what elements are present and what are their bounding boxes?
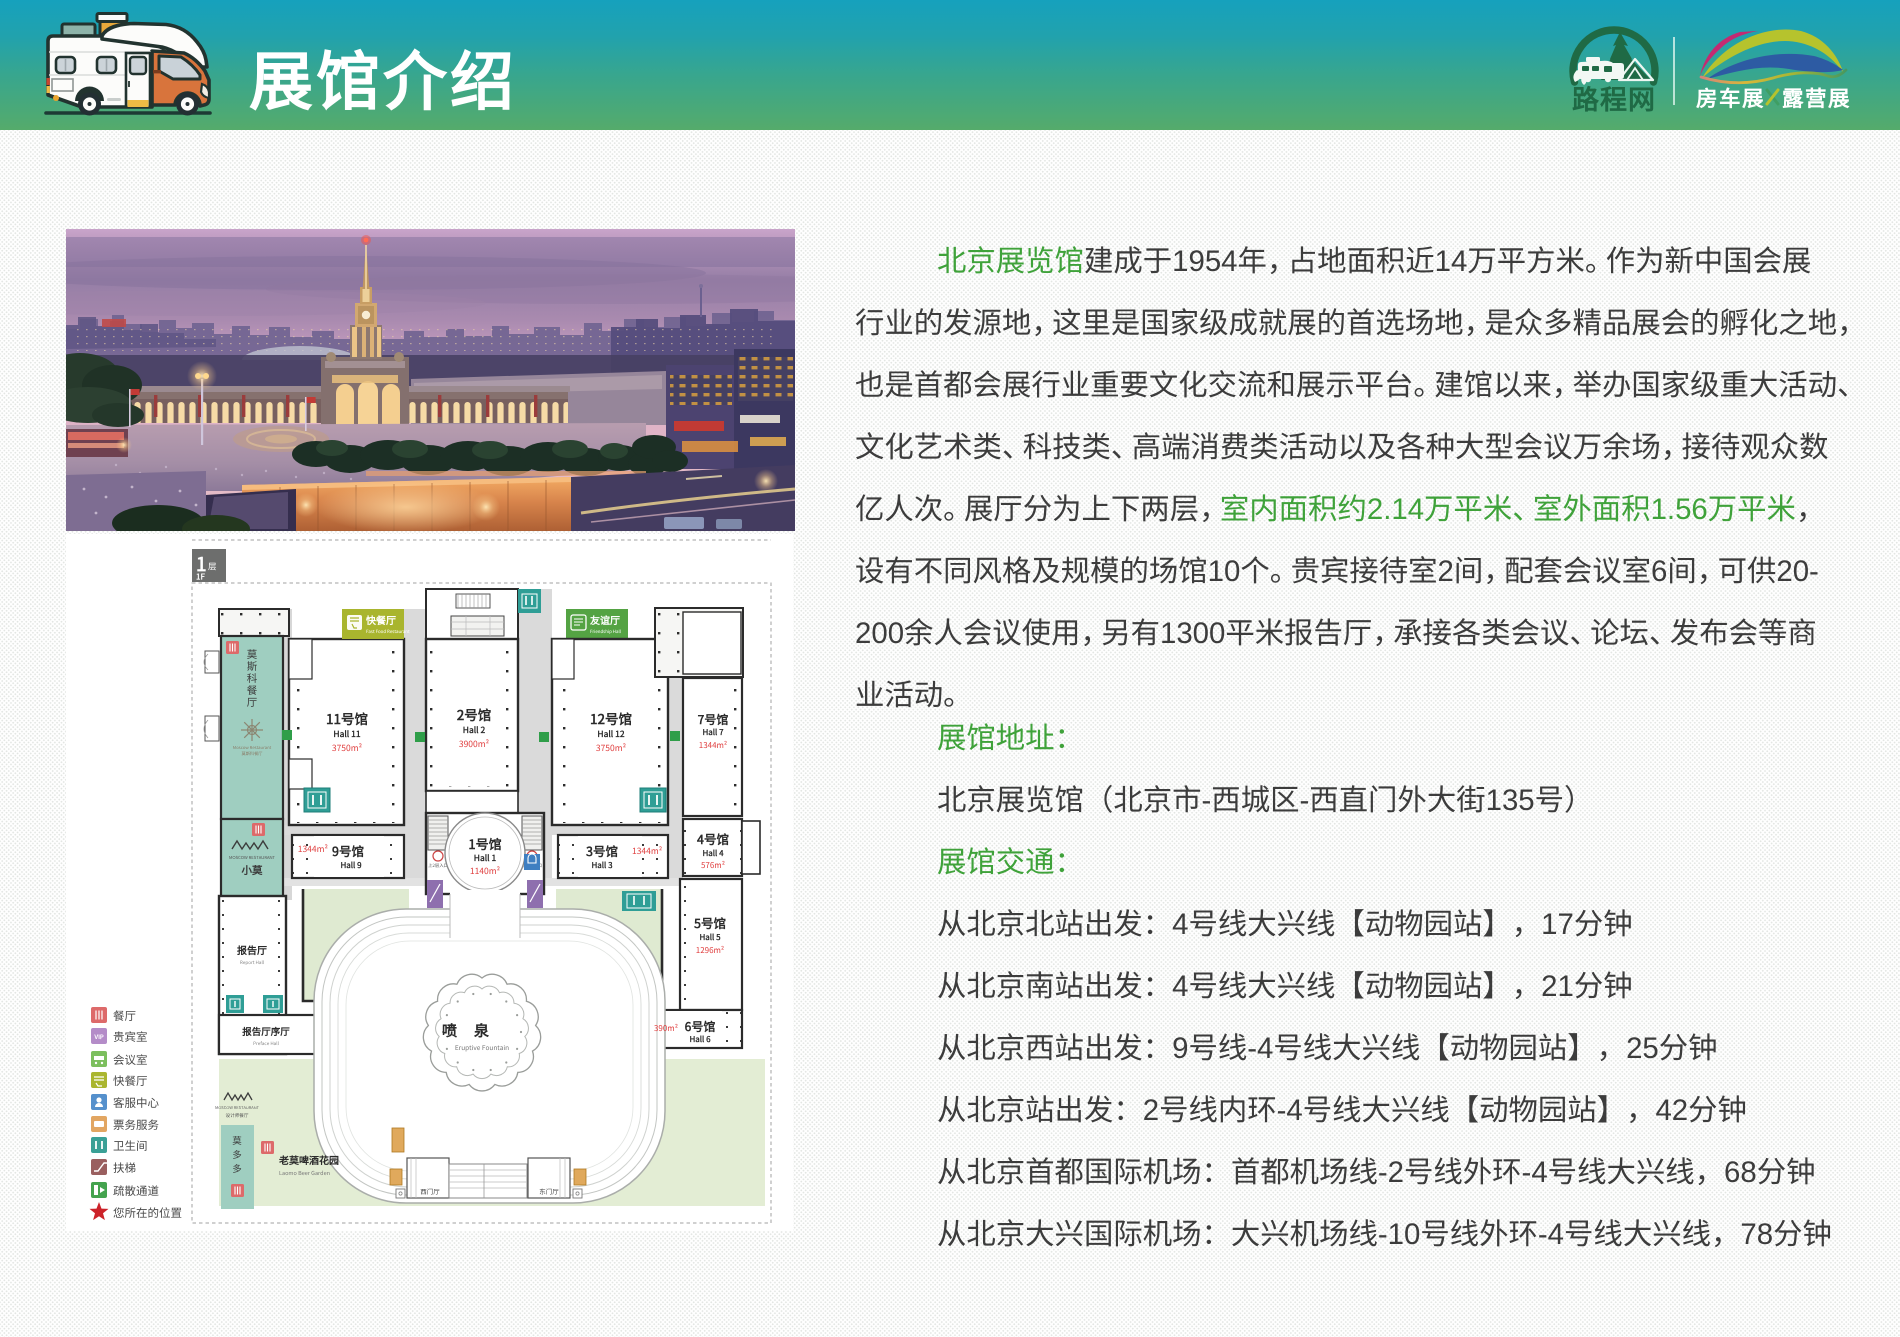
svg-text:Hall 7: Hall 7: [702, 727, 724, 738]
svg-text:Hall 1: Hall 1: [474, 852, 497, 864]
svg-text:MOSCOW RESTAURANT: MOSCOW RESTAURANT: [229, 855, 276, 861]
svg-text:您所在的位置: 您所在的位置: [113, 1205, 182, 1221]
svg-text:6号馆: 6号馆: [685, 1018, 716, 1035]
svg-text:报告厅序厅: 报告厅序厅: [242, 1024, 290, 1038]
svg-text:快餐厅: 快餐厅: [365, 612, 396, 627]
svg-text:房车展: 房车展: [1696, 82, 1765, 113]
svg-text:MOSCOW RESTAURANT: MOSCOW RESTAURANT: [215, 1105, 260, 1111]
svg-text:莫斯科餐厅: 莫斯科餐厅: [242, 751, 263, 757]
svg-text:上2层入口: 上2层入口: [428, 863, 448, 869]
svg-text:Hall 4: Hall 4: [702, 848, 724, 859]
svg-text:快餐厅: 快餐厅: [113, 1073, 148, 1089]
svg-text:Hall 6: Hall 6: [689, 1034, 711, 1045]
svg-text:1344m²: 1344m²: [632, 845, 663, 857]
svg-text:3750m²: 3750m²: [332, 742, 363, 754]
svg-text:厅: 厅: [247, 695, 258, 710]
svg-text:餐厅: 餐厅: [113, 1008, 136, 1024]
svg-text:多: 多: [232, 1161, 242, 1175]
svg-text:老莫啤酒花园: 老莫啤酒花园: [278, 1152, 339, 1167]
svg-text:VIP: VIP: [94, 1032, 104, 1041]
svg-text:会议室: 会议室: [113, 1052, 148, 1068]
svg-text:11号馆: 11号馆: [326, 708, 368, 728]
svg-text:客服中心: 客服中心: [113, 1095, 159, 1111]
svg-text:票务服务: 票务服务: [113, 1117, 159, 1133]
svg-text:Eruptive Fountain: Eruptive Fountain: [455, 1042, 509, 1052]
svg-text:扶梯: 扶梯: [113, 1160, 136, 1176]
svg-text:576m²: 576m²: [701, 860, 725, 871]
svg-text:1344m²: 1344m²: [699, 740, 727, 751]
svg-text:莫: 莫: [232, 1133, 242, 1147]
svg-text:报告厅: 报告厅: [237, 942, 267, 957]
svg-text:1140m²: 1140m²: [470, 865, 501, 877]
svg-text:1号馆: 1号馆: [468, 834, 501, 853]
svg-text:Hall 2: Hall 2: [463, 724, 486, 736]
svg-text:1344m²: 1344m²: [298, 843, 329, 855]
svg-text:路程网: 路程网: [1572, 78, 1656, 116]
svg-text:Fast Food Restaurant: Fast Food Restaurant: [366, 629, 410, 635]
svg-text:设计师餐厅: 设计师餐厅: [226, 1113, 249, 1119]
svg-text:Report Hall: Report Hall: [240, 960, 265, 966]
svg-text:3750m²: 3750m²: [596, 742, 627, 754]
svg-text:9号馆: 9号馆: [332, 841, 364, 860]
svg-text:3900m²: 3900m²: [459, 738, 490, 750]
svg-text:Hall 11: Hall 11: [333, 728, 360, 740]
svg-text:西门厅: 西门厅: [420, 1186, 440, 1196]
svg-text:4号馆: 4号馆: [696, 829, 729, 848]
svg-text:Hall 12: Hall 12: [597, 728, 624, 740]
svg-text:7号馆: 7号馆: [698, 711, 729, 728]
svg-text:卫生间: 卫生间: [113, 1138, 148, 1154]
svg-text:疏散通道: 疏散通道: [113, 1183, 159, 1199]
svg-text:3号馆: 3号馆: [586, 841, 618, 860]
svg-text:Hall 3: Hall 3: [591, 860, 613, 871]
svg-text:Friendship Hall: Friendship Hall: [590, 629, 622, 635]
svg-text:1F: 1F: [196, 572, 205, 583]
svg-text:1296m²: 1296m²: [696, 945, 724, 956]
svg-text:12号馆: 12号馆: [590, 708, 632, 728]
svg-text:2号馆: 2号馆: [457, 704, 492, 724]
svg-text:多: 多: [232, 1147, 242, 1161]
svg-text:友谊厅: 友谊厅: [589, 612, 620, 627]
svg-text:Laomo Beer Garden: Laomo Beer Garden: [279, 1169, 330, 1177]
svg-text:喷泉: 喷泉: [442, 1020, 506, 1041]
svg-text:层: 层: [208, 561, 217, 573]
svg-text:390m²: 390m²: [654, 1023, 678, 1034]
svg-text:Hall 5: Hall 5: [699, 932, 721, 943]
svg-text:小莫: 小莫: [241, 863, 263, 878]
svg-text:Preface Hall: Preface Hall: [253, 1041, 279, 1047]
svg-text:露营展: 露营展: [1782, 82, 1851, 113]
svg-text:5号馆: 5号馆: [693, 913, 726, 932]
svg-text:东门厅: 东门厅: [539, 1186, 559, 1196]
svg-text:Hall 9: Hall 9: [340, 860, 362, 871]
svg-text:贵宾室: 贵宾室: [113, 1029, 148, 1045]
